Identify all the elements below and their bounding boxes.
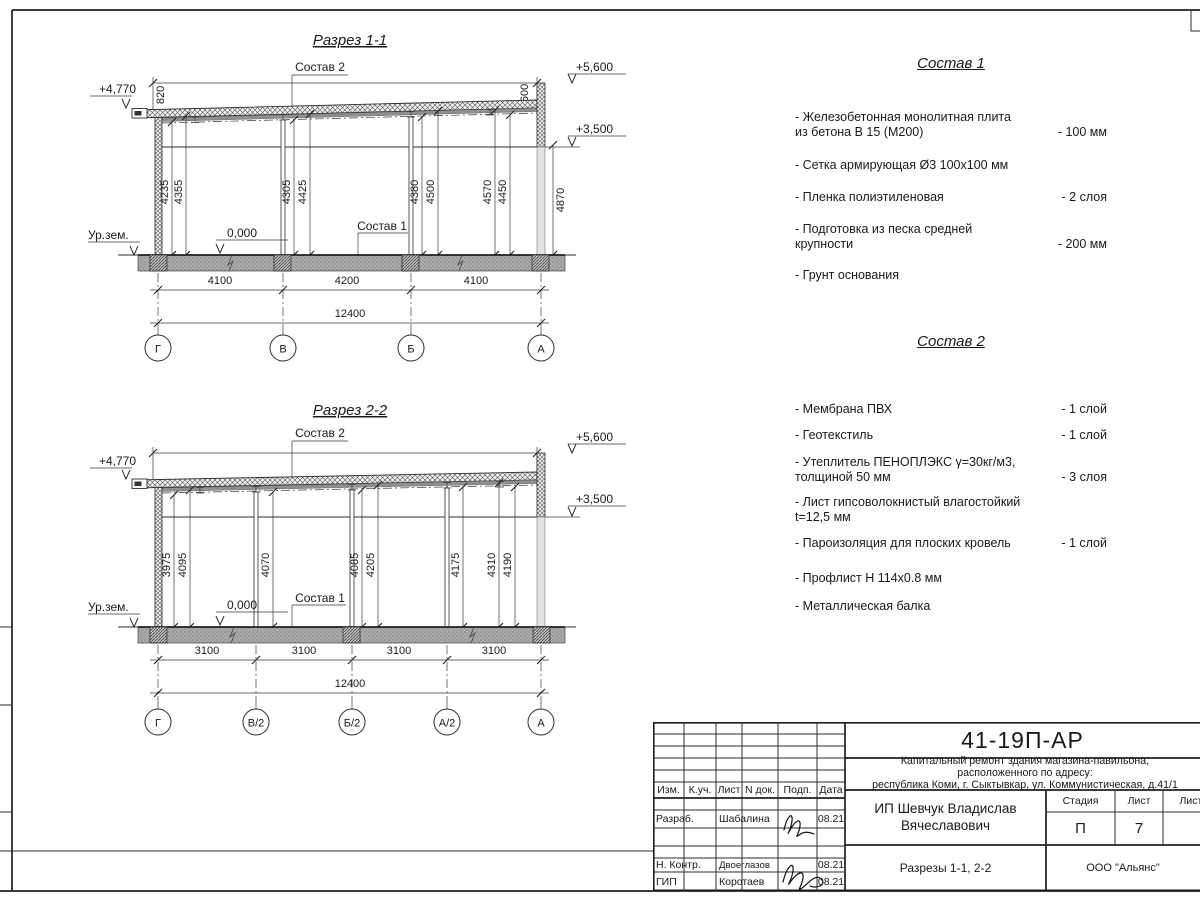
sostav1-leader-label: Состав 1 <box>357 219 407 233</box>
col-data: Дата <box>817 782 845 798</box>
right-wall-glazing <box>537 147 545 255</box>
sostav-2-title: Состав 2 <box>795 333 1107 350</box>
list-item: - Мембрана ПВХ - 1 слой <box>795 402 1107 417</box>
col-list: Лист <box>716 782 742 798</box>
svg-text:4425: 4425 <box>297 180 309 204</box>
elev-3500-label: +3,500 <box>576 492 613 506</box>
svg-text:3975: 3975 <box>161 553 173 577</box>
svg-text:4100: 4100 <box>464 275 488 287</box>
section-1-1-drawing: Разрез 1-1 Состав 2 820 600 +4,770 +5,60… <box>20 25 660 385</box>
svg-text:Б/2: Б/2 <box>344 718 360 730</box>
col-ndok: N док. <box>742 782 778 798</box>
svg-text:А: А <box>537 344 545 356</box>
svg-text:Б: Б <box>407 344 414 356</box>
svg-text:3100: 3100 <box>292 645 316 657</box>
elev-4770-label: +4,770 <box>99 82 136 96</box>
right-parapet <box>537 83 545 147</box>
sostav-2-panel: Состав 2 - Мембрана ПВХ - 1 слой - Геоте… <box>795 333 1107 614</box>
list-item: - Утеплитель ПЕНОПЛЭКС γ=30кг/м3, толщин… <box>795 455 1107 486</box>
svg-text:А/2: А/2 <box>439 718 456 730</box>
col-kuch: К.уч. <box>684 782 716 798</box>
svg-text:4570: 4570 <box>482 180 494 204</box>
elev-5600-label: +5,600 <box>576 430 613 444</box>
right-parapet <box>537 453 545 517</box>
svg-text:4305: 4305 <box>281 180 293 204</box>
svg-text:3100: 3100 <box>482 645 506 657</box>
row-date: 08.21 <box>817 872 845 891</box>
total-dim: 12400 <box>335 308 366 320</box>
dim-4870: 4870 <box>555 188 567 212</box>
axis-markers: Г В Б А <box>145 331 554 361</box>
list-item: - Металлическая балка <box>795 599 1107 614</box>
zero-level-label: 0,000 <box>227 598 257 612</box>
floor-slab <box>138 255 565 271</box>
svg-text:4200: 4200 <box>335 275 359 287</box>
list-item: - Профлист Н 114х0.8 мм <box>795 571 1107 586</box>
section-2-2-title: Разрез 2-2 <box>313 402 388 419</box>
drawing-sheet: Разрез 1-1 Состав 2 820 600 +4,770 +5,60… <box>0 0 1200 900</box>
roof-dim-820: 820 <box>155 86 167 104</box>
svg-text:4190: 4190 <box>502 553 514 577</box>
svg-text:4355: 4355 <box>173 180 185 204</box>
frame-corner-box <box>1191 10 1200 31</box>
sheet-title: Разрезы 1-1, 2-2 <box>845 845 1046 891</box>
sostav2-leader-label: Состав 2 <box>295 60 345 74</box>
row-role: Н. Контр. <box>653 858 716 872</box>
height-dimensions: 4235 4355 4305 4425 4380 4500 4570 4450 … <box>159 106 567 259</box>
list-item: - Лист гипсоволокнистый влагостойкий t=1… <box>795 495 1107 526</box>
svg-text:4380: 4380 <box>409 180 421 204</box>
bottom-dimensions: 3100 3100 3100 3100 12400 <box>150 645 549 701</box>
client-name: ИП Шевчук Владислав Вячеславович <box>845 790 1046 845</box>
sheets-label: Листов <box>1163 790 1200 812</box>
axis-markers: Г В/2 Б/2 А/2 А <box>145 701 554 735</box>
elev-5600-label: +5,600 <box>576 60 613 74</box>
company-name: ООО "Альянс" <box>1046 845 1200 891</box>
svg-text:4500: 4500 <box>425 180 437 204</box>
list-item: - Пленка полиэтиленовая - 2 слоя <box>795 190 1107 205</box>
sostav-1-title: Состав 1 <box>795 55 1107 72</box>
signature-razrab <box>784 816 814 837</box>
section-2-2-drawing: Разрез 2-2 Состав 2 +4,770 +5,600 +3,500 <box>20 395 660 765</box>
title-block: 41-19П-АР Капитальный ремонт здания мага… <box>653 722 1200 891</box>
row-role: ГИП <box>653 872 716 891</box>
ground-level-label: Ур.зем. <box>88 228 129 242</box>
sheet-value: 7 <box>1115 812 1163 845</box>
row-date: 08.21 <box>817 858 845 872</box>
stage-label: Стадия <box>1046 790 1115 812</box>
height-dimensions: 3975 4095 4070 4085 4205 4175 4310 4190 <box>161 479 519 631</box>
col-izm: Изм. <box>653 782 684 798</box>
stage-value: П <box>1046 812 1115 845</box>
total-dim: 12400 <box>335 678 366 690</box>
bottom-dimensions: 4100 4200 4100 12400 <box>150 273 549 331</box>
doc-number: 41-19П-АР <box>845 722 1200 758</box>
sostav1-leader-label: Состав 1 <box>295 591 345 605</box>
svg-text:В/2: В/2 <box>248 718 265 730</box>
svg-text:В: В <box>279 344 286 356</box>
svg-text:4205: 4205 <box>365 553 377 577</box>
svg-text:3100: 3100 <box>387 645 411 657</box>
svg-text:Г: Г <box>155 344 161 356</box>
list-item: - Грунт основания <box>795 268 1107 283</box>
row-date: 08.21 <box>817 810 845 828</box>
elev-4770-label: +4,770 <box>99 454 136 468</box>
svg-text:4310: 4310 <box>486 553 498 577</box>
row-name: Шабалина <box>716 810 778 828</box>
svg-text:А: А <box>537 718 545 730</box>
svg-text:3100: 3100 <box>195 645 219 657</box>
ground-level-label: Ур.зем. <box>88 600 129 614</box>
list-item: - Подготовка из песка средней крупности … <box>795 222 1107 253</box>
row-name: Коротаев <box>716 872 778 891</box>
right-wall-glazing <box>537 517 545 627</box>
row-name: Двоеглазов <box>716 858 778 872</box>
list-item: - Пароизоляция для плоских кровель - 1 с… <box>795 536 1107 551</box>
sostav-1-panel: Состав 1 - Железобетонная монолитная пли… <box>795 55 1107 283</box>
column-A2 <box>445 488 449 627</box>
col-podp: Подп. <box>778 782 817 798</box>
svg-text:4095: 4095 <box>177 553 189 577</box>
svg-text:4100: 4100 <box>208 275 232 287</box>
svg-text:4175: 4175 <box>450 553 462 577</box>
list-item: - Сетка армирующая Ø3 100х100 мм <box>795 158 1107 173</box>
project-description: Капитальный ремонт здания магазина-павил… <box>845 758 1200 790</box>
list-item: - Железобетонная монолитная плита из бет… <box>795 110 1107 141</box>
svg-text:4070: 4070 <box>260 553 272 577</box>
svg-text:4235: 4235 <box>159 180 171 204</box>
svg-text:4450: 4450 <box>497 180 509 204</box>
roof-dim-600: 600 <box>519 84 531 102</box>
row-role: Разраб. <box>653 810 716 828</box>
list-item: - Геотекстиль - 1 слой <box>795 428 1107 443</box>
section-1-1-title: Разрез 1-1 <box>313 32 387 49</box>
zero-level-label: 0,000 <box>227 226 257 240</box>
sostav2-leader-label: Состав 2 <box>295 426 345 440</box>
elev-3500-label: +3,500 <box>576 122 613 136</box>
svg-text:4085: 4085 <box>349 553 361 577</box>
svg-text:Г: Г <box>155 718 161 730</box>
sheet-label: Лист <box>1115 790 1163 812</box>
